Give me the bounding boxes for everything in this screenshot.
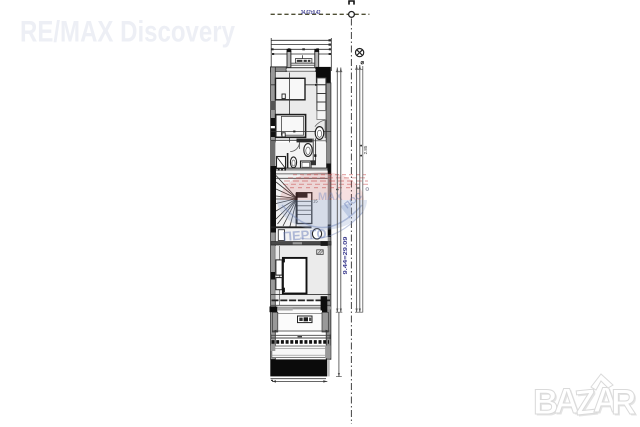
svg-text:34.67±0.42: 34.67±0.42 [301,10,321,16]
svg-text:R: R [611,383,636,422]
svg-text:МАХ: МАХ [318,191,343,203]
svg-text:RE/MAX Discovery: RE/MAX Discovery [20,16,235,49]
svg-text:9.44=29.09: 9.44=29.09 [343,236,349,274]
svg-text:2.85: 2.85 [363,145,368,154]
